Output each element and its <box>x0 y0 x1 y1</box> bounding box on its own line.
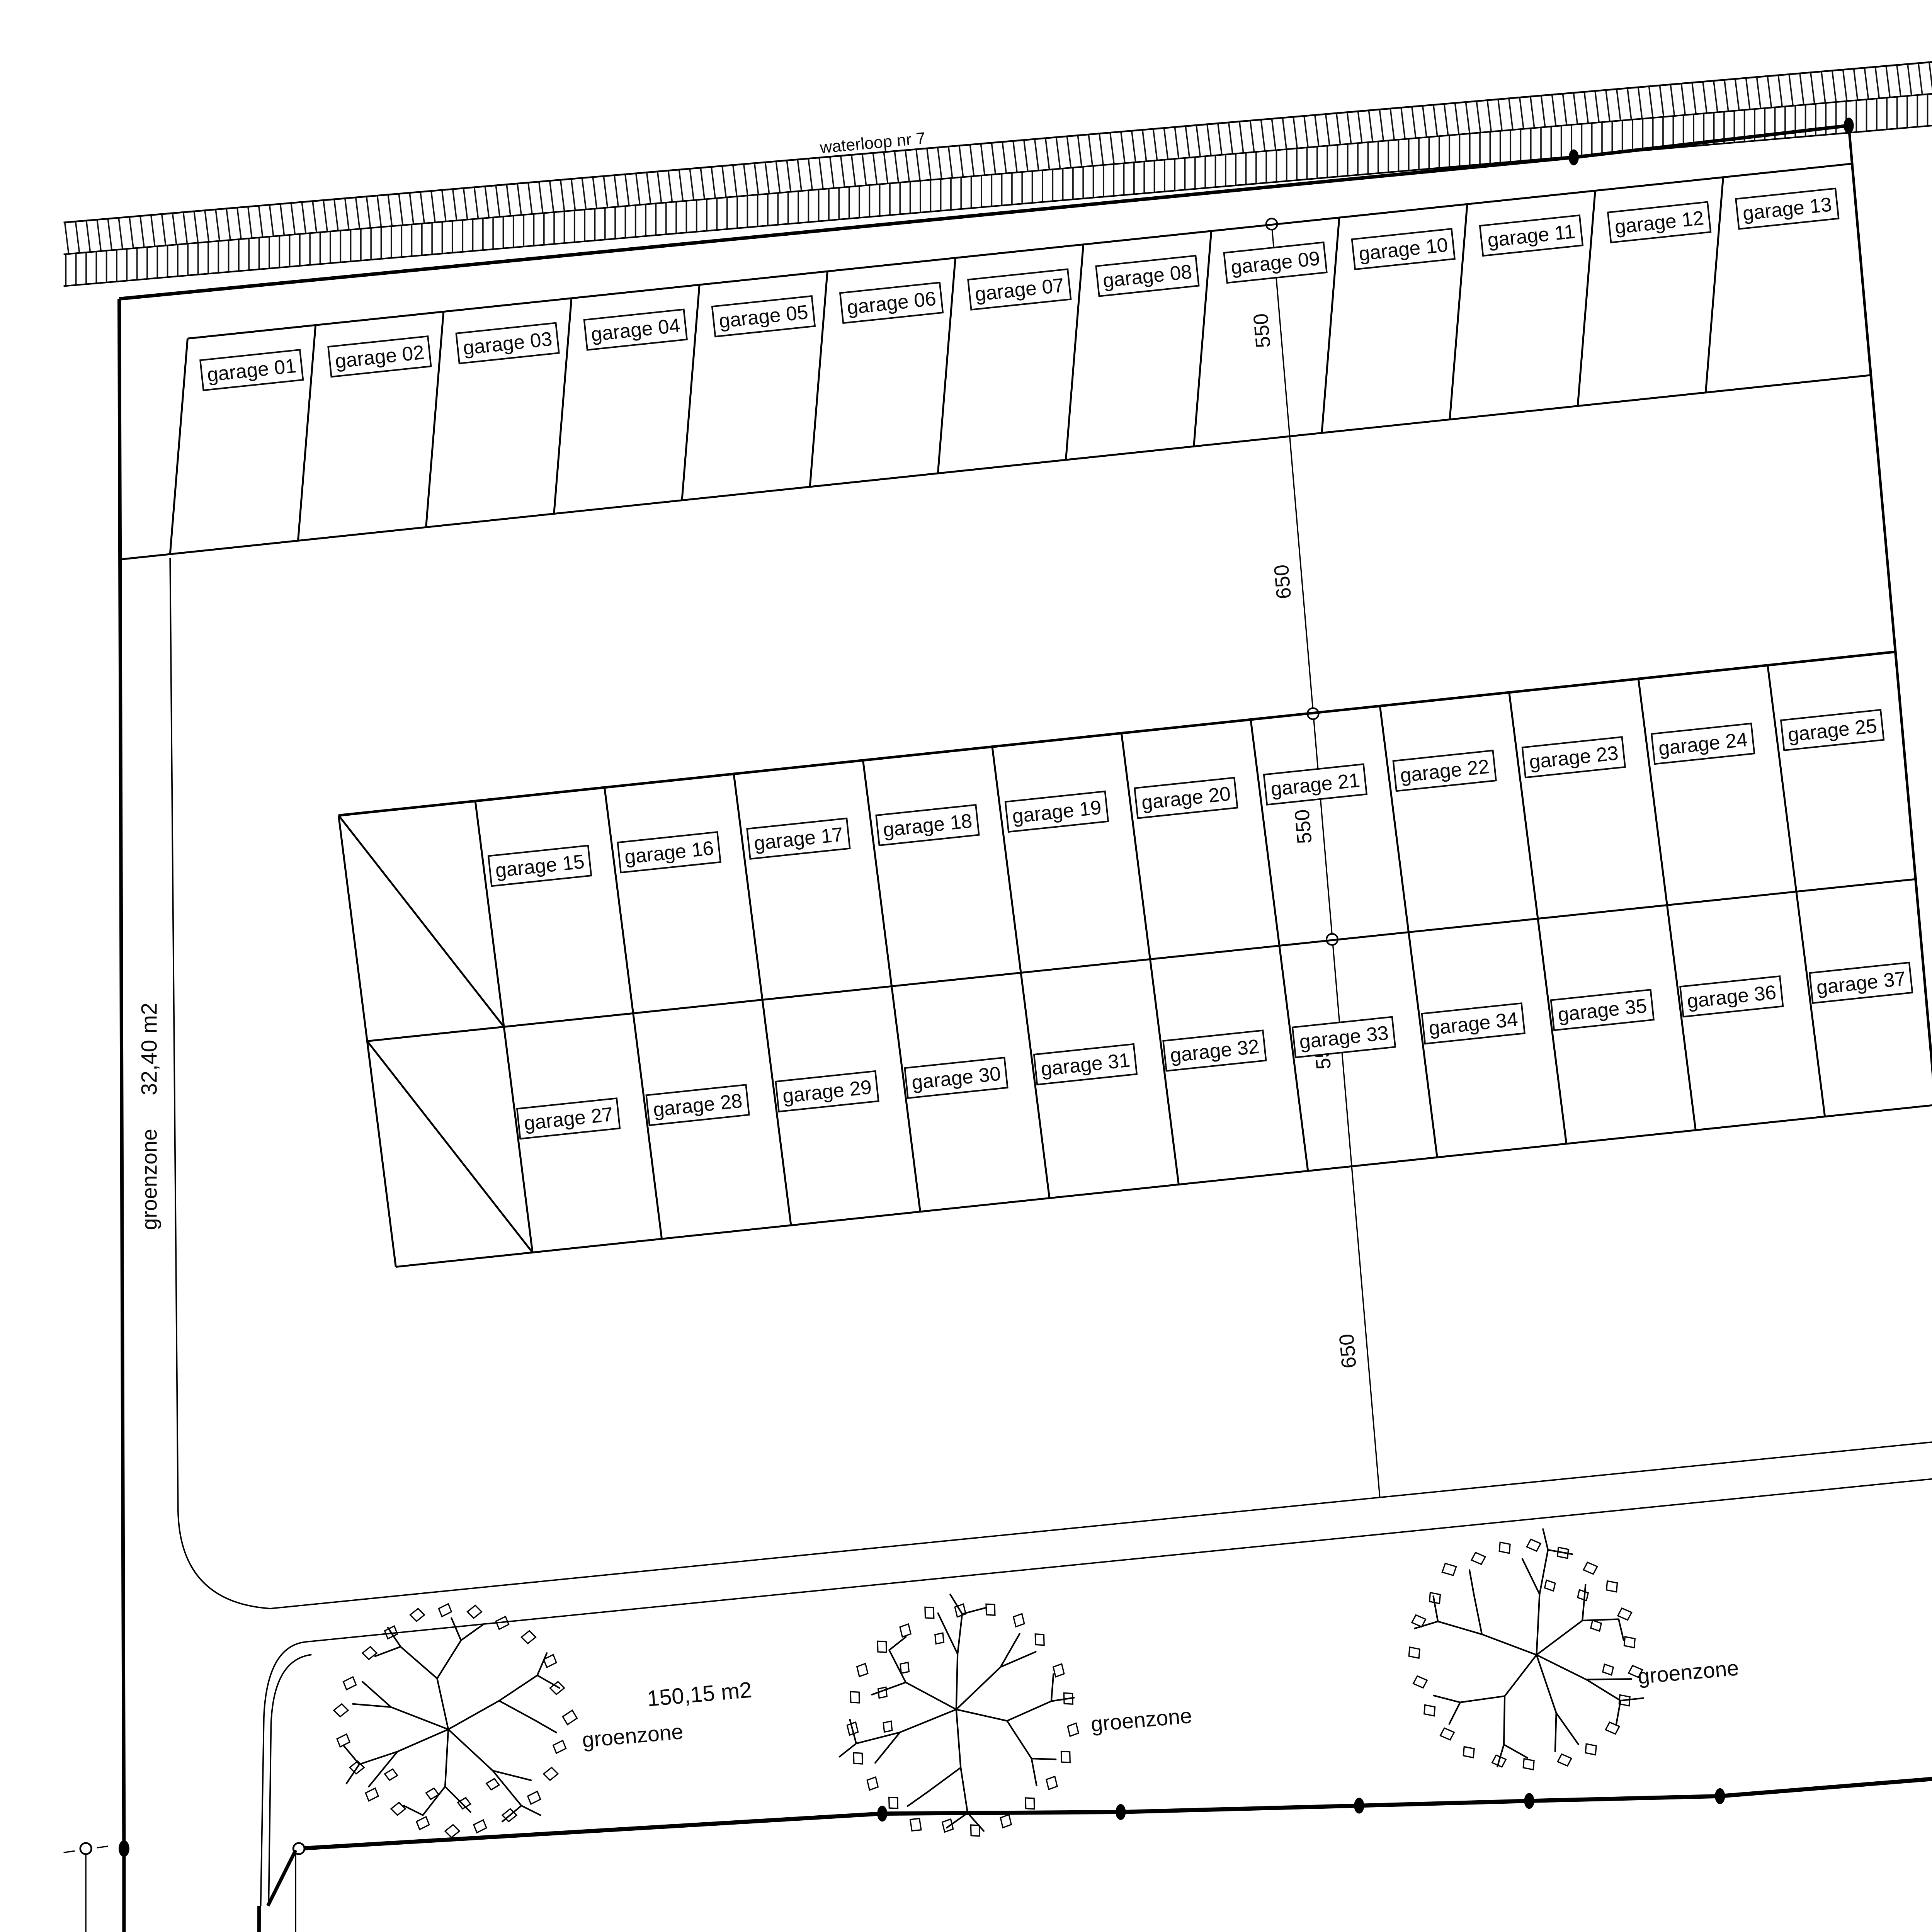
garage-label: garage 18 <box>876 805 979 845</box>
garage-label: garage 07 <box>968 269 1071 310</box>
garage-rows-outline <box>119 164 1932 1267</box>
garage-divider <box>1279 946 1308 1171</box>
garage-divider <box>1380 706 1408 932</box>
garage-label: garage 23 <box>1522 737 1625 777</box>
garage-label: garage 33 <box>1293 1017 1395 1058</box>
tree-icon <box>804 1560 1118 1879</box>
garage-divider <box>1121 733 1150 959</box>
garage-divider <box>1150 959 1179 1185</box>
garage-divider <box>605 787 633 1013</box>
garage-divider <box>504 1027 532 1252</box>
garage-divider <box>1538 918 1566 1144</box>
garage-label: garage 13 <box>1736 189 1838 229</box>
dim-650-gap2: 650 <box>1335 1333 1361 1369</box>
garage-label: garage 04 <box>584 310 687 350</box>
garage-divider <box>734 774 762 1000</box>
garage-label: garage 01 <box>200 350 303 390</box>
garage-label: garage 19 <box>1005 791 1108 832</box>
site-plan: waterloop nr 7 550 650 55 <box>0 0 1932 1932</box>
garage-labels: garage 01garage 02garage 03garage 04gara… <box>200 189 1912 1139</box>
garage-label: garage 09 <box>1224 242 1327 283</box>
dim-650-gap1: 650 <box>1270 564 1296 600</box>
garage-label: garage 36 <box>1680 976 1783 1017</box>
garage-divider <box>633 1013 662 1239</box>
garage-label: garage 15 <box>488 845 591 886</box>
garage-divider <box>892 986 920 1212</box>
garage-divider <box>1768 665 1796 891</box>
garage-divider <box>1408 932 1437 1157</box>
left-zone-label: groenzone <box>138 1129 162 1230</box>
green-zone-label-2: groenzone <box>1090 1704 1193 1736</box>
dim-550-row2: 550 <box>1291 808 1316 845</box>
garage-label: garage 22 <box>1393 750 1496 791</box>
garage-label: garage 32 <box>1163 1031 1266 1071</box>
garage-divider <box>762 1000 791 1225</box>
houses <box>257 1906 1932 1932</box>
garage-label: garage 29 <box>776 1071 879 1112</box>
green-zone-area: 150,15 m2 <box>646 1677 753 1711</box>
site-plan-canvas: waterloop nr 7 550 650 55 <box>0 0 1932 1932</box>
garage-divider <box>1638 679 1667 905</box>
garage-label: garage 28 <box>646 1085 749 1125</box>
garage-divider <box>1509 692 1538 918</box>
garage-label: garage 31 <box>1034 1044 1137 1085</box>
garage-label: garage 06 <box>840 282 943 323</box>
green-zone-label-3: groenzone <box>1637 1656 1740 1689</box>
garage-divider <box>1251 719 1279 945</box>
left-zone-area: 32,40 m2 <box>137 1003 162 1095</box>
tree-icon <box>334 1604 577 1838</box>
garage-divider <box>992 747 1021 973</box>
garage-label: garage 17 <box>747 818 850 859</box>
garage-label: garage 11 <box>1480 215 1583 256</box>
garage-divider <box>475 801 504 1027</box>
garage-label: garage 25 <box>1781 710 1884 750</box>
garage-label: garage 24 <box>1651 723 1754 764</box>
garage-divider <box>1021 973 1049 1198</box>
garage-divider <box>170 338 187 554</box>
garage-label: garage 30 <box>905 1058 1008 1098</box>
garage-divider <box>1796 891 1825 1117</box>
garage-label: garage 10 <box>1352 229 1455 269</box>
garage-label: garage 05 <box>712 296 815 337</box>
garden-fence <box>268 1774 1932 1932</box>
garage-label: garage 20 <box>1134 778 1237 818</box>
garage-label: garage 27 <box>517 1098 620 1139</box>
tree-icon <box>1357 1487 1693 1823</box>
green-zone-label-1: groenzone <box>581 1719 684 1752</box>
garage-label: garage 02 <box>328 336 431 377</box>
garage-label: garage 08 <box>1096 256 1199 296</box>
dim-550-row1: 550 <box>1249 313 1275 349</box>
garage-label: garage 03 <box>456 323 559 364</box>
garage-label: garage 16 <box>618 832 721 872</box>
garage-label: garage 21 <box>1264 764 1367 805</box>
waterloop-band <box>64 51 1932 286</box>
garage-label: garage 34 <box>1422 1003 1525 1044</box>
garage-label: garage 37 <box>1810 963 1912 1003</box>
garage-divider <box>863 760 891 986</box>
benchmark-marker <box>64 1843 108 1932</box>
garage-label: garage 12 <box>1608 202 1711 243</box>
garage-label: garage 35 <box>1551 990 1654 1030</box>
garage-divider <box>1667 905 1696 1130</box>
